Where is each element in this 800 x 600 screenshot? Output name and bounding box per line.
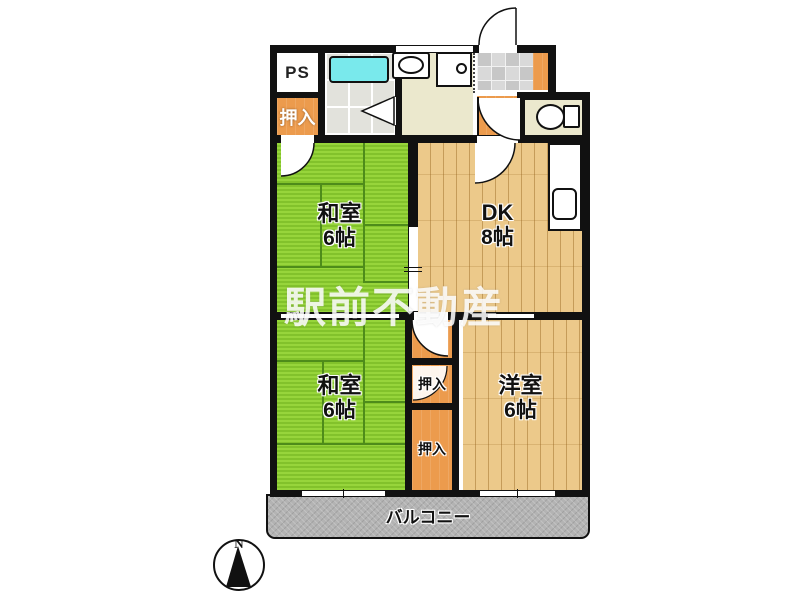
watermark: 駅前不動産 — [284, 274, 504, 335]
compass-north-label: N — [231, 536, 247, 551]
ps-label: PS — [277, 53, 318, 92]
toilet-bowl — [536, 104, 565, 130]
balcony-label: バルコニー — [266, 503, 590, 527]
closet-top-label: 押入 — [277, 98, 318, 135]
closet-mid-upper-label: 押入 — [412, 368, 452, 400]
washing-machine-tap — [456, 63, 467, 74]
washitsu-lower-label: 和室 6帖 — [287, 365, 392, 431]
closet-mid-lower-label: 押入 — [412, 434, 452, 464]
washbasin-bowl — [398, 56, 424, 74]
washitsu-upper-label: 和室 6帖 — [287, 193, 392, 259]
compass-needle-icon — [226, 546, 251, 587]
toilet-tank — [563, 105, 580, 128]
yoshitsu-label: 洋室 6帖 — [468, 365, 573, 431]
entrance-door-arc — [479, 8, 516, 45]
kitchen-sink — [552, 188, 577, 220]
floor-plan: PS 押入 和室 6帖 DK 8帖 和室 6帖 洋室 6帖 押入 押入 バルコニ… — [0, 0, 800, 600]
bath-folding-door — [362, 97, 394, 125]
dk-label: DK 8帖 — [450, 193, 545, 257]
